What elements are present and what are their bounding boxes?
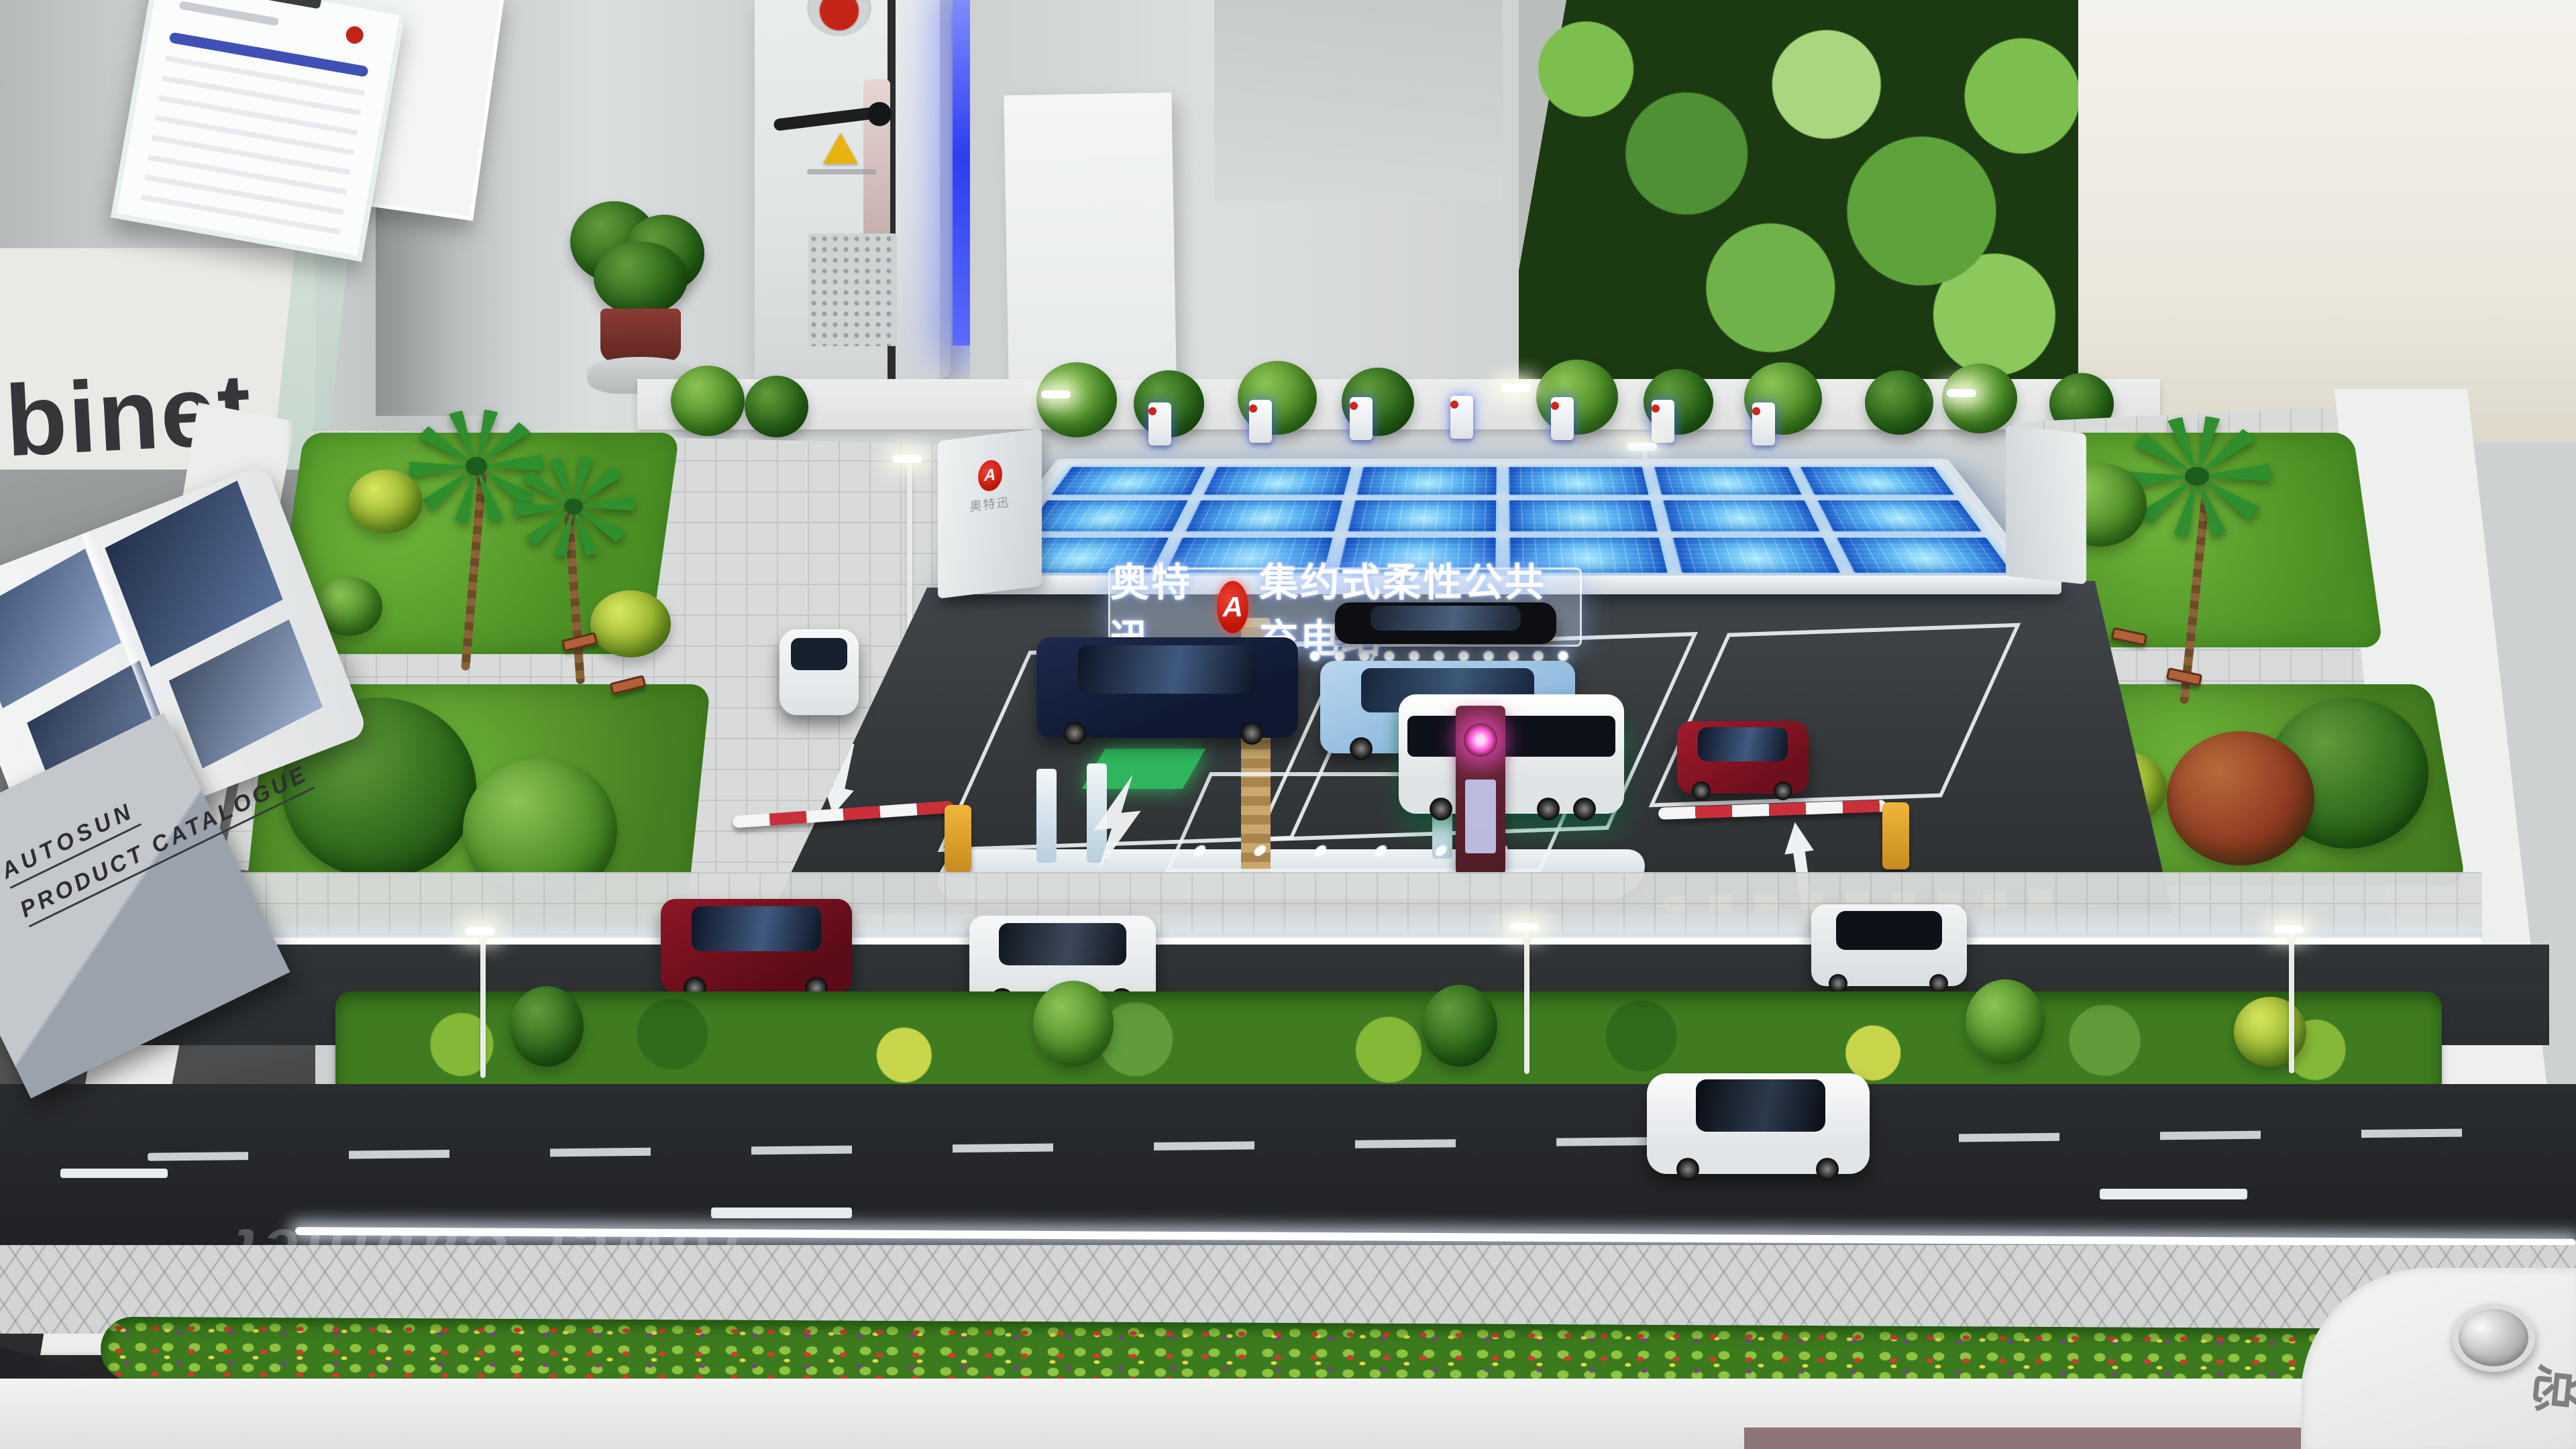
power-cabinet — [755, 0, 951, 380]
base-corner-label: 总 — [2521, 1361, 2576, 1418]
solar-panel — [1049, 466, 1207, 495]
tree — [1536, 360, 1618, 435]
street-lamp-head — [1501, 384, 1531, 392]
solar-panel — [1022, 500, 1191, 533]
charging-pile — [1652, 400, 1674, 443]
canopy-end-cap-right — [2006, 425, 2086, 585]
tree-autumn — [2167, 731, 2314, 865]
solar-panel — [1661, 500, 1821, 533]
bus-wheel — [1430, 798, 1452, 820]
bus-wheel — [1537, 798, 1560, 820]
street-lamp-head — [1627, 443, 1657, 451]
station-signboard — [1456, 706, 1505, 875]
booth-wall-right — [2078, 0, 2576, 443]
car-wheel — [1063, 722, 1086, 745]
shrub — [590, 590, 671, 657]
car-wheel — [1240, 722, 1263, 745]
emergency-stop-button — [807, 0, 871, 36]
spec-sheet-text-rows — [141, 56, 365, 236]
street-lamp-head — [466, 927, 495, 935]
palm-tree-fronds — [2123, 416, 2271, 537]
green-backdrop-print — [1519, 0, 2078, 384]
bus-window-band — [1407, 716, 1615, 757]
solar-panel — [1798, 466, 1956, 495]
ev-car-black — [1335, 602, 1556, 644]
plant-foliage — [594, 241, 688, 315]
booth-gray-shape — [1214, 0, 1503, 201]
palm-tree-fronds — [513, 456, 634, 557]
solar-panel — [1653, 466, 1804, 495]
led-strip-blue — [953, 0, 970, 345]
car-white-suv-main-road — [1647, 1073, 1870, 1174]
car-glass — [1836, 911, 1942, 951]
literature-stand-front — [111, 0, 406, 262]
car-wheel — [1774, 782, 1792, 800]
potted-plant — [563, 201, 718, 396]
lane-marking-stub — [60, 1169, 168, 1178]
charger-pillar — [1036, 769, 1057, 863]
binder-clip — [240, 0, 323, 9]
car-glass — [999, 923, 1126, 965]
brand-logo-letter: A — [1223, 591, 1243, 623]
tree — [745, 376, 808, 437]
plant-pot — [600, 309, 681, 362]
tree — [1942, 364, 2017, 433]
median-tree — [1033, 981, 1114, 1067]
street-lamp-head — [1947, 389, 1976, 397]
charging-pile — [1249, 400, 1272, 443]
solar-panel — [1183, 500, 1344, 533]
charging-pile — [1148, 402, 1171, 445]
car-glass — [1078, 645, 1256, 694]
car-wheel — [1692, 782, 1711, 800]
solar-panel — [1354, 466, 1498, 495]
front-sidewalk — [80, 872, 2482, 946]
ev-sedan-red — [1677, 721, 1809, 794]
car-wheel — [1929, 974, 1948, 993]
solar-panel — [1201, 466, 1352, 495]
solar-panel — [1346, 500, 1498, 533]
demo-white-box — [1004, 93, 1176, 384]
charging-pile — [1450, 396, 1473, 439]
solar-panel — [1507, 500, 1660, 533]
warning-caption-bar — [807, 169, 877, 174]
curb-led-strip — [94, 938, 2482, 945]
charging-pile — [1551, 397, 1574, 440]
cabinet-handle-pivot — [867, 102, 892, 126]
warning-triangle-icon — [823, 133, 858, 164]
lane-marking-stub — [2100, 1189, 2247, 1199]
median-tree — [1422, 985, 1497, 1067]
median-tree — [510, 986, 584, 1067]
car-glass — [1698, 727, 1787, 762]
bus-wheel — [1573, 798, 1596, 820]
canopy-end-logo-letter: A — [984, 466, 996, 486]
solar-panel — [1834, 537, 2015, 574]
brand-logo-icon: A — [1217, 581, 1248, 633]
shrub — [349, 470, 423, 533]
median-green-strip — [335, 991, 2442, 1097]
tree — [1036, 362, 1117, 437]
solar-panel — [1671, 537, 1843, 574]
signboard-screen — [1465, 780, 1496, 853]
solar-panel — [1815, 500, 1984, 533]
exhibition-model-photo: binet — [0, 0, 2576, 1449]
car-wheel — [1350, 737, 1373, 760]
canopy-end-logo-text: 奥特迅 — [970, 492, 1010, 515]
car-glass — [1371, 606, 1521, 631]
vent-grille — [808, 233, 897, 346]
car-wheel — [1816, 1158, 1839, 1181]
canopy-end-cap-left: A 奥特迅 — [938, 428, 1042, 598]
shuttle-bus — [1399, 694, 1624, 814]
car-wheel — [1829, 974, 1847, 993]
car-windshield — [791, 638, 848, 671]
street-lamp — [480, 934, 486, 1078]
car-white-right-access-road — [1811, 904, 1967, 986]
tree — [671, 366, 745, 436]
ev-car-white-entering — [780, 629, 859, 715]
car-glass — [692, 906, 822, 951]
street-lamp — [2289, 932, 2294, 1073]
barrier-gate-post-right — [1882, 802, 1909, 869]
solar-panel — [1507, 466, 1651, 495]
charger-pillar — [1087, 763, 1107, 863]
car-wheel — [1676, 1158, 1699, 1181]
street-lamp-head — [2274, 926, 2304, 934]
median-tree — [1966, 979, 2045, 1064]
suv-roof-glass — [1696, 1079, 1825, 1132]
charging-pile — [1752, 402, 1775, 445]
median-shrub — [2234, 997, 2306, 1067]
car-red-access-road — [661, 899, 852, 993]
signboard-magenta-glow — [1464, 723, 1497, 757]
street-lamp — [1524, 930, 1529, 1074]
spec-sheet-logo — [345, 25, 365, 45]
charging-pile — [1350, 397, 1373, 440]
tree — [1865, 370, 1933, 435]
canopy-end-logo-icon: A — [978, 459, 1002, 492]
barrier-gate-post-left — [945, 805, 971, 872]
ev-mpv-darkblue — [1036, 637, 1298, 738]
street-lamp-head — [1041, 390, 1071, 398]
street-lamp-head — [1509, 923, 1539, 931]
street-lamp-head — [892, 455, 922, 463]
spec-sheet-title-bar — [178, 1, 279, 26]
